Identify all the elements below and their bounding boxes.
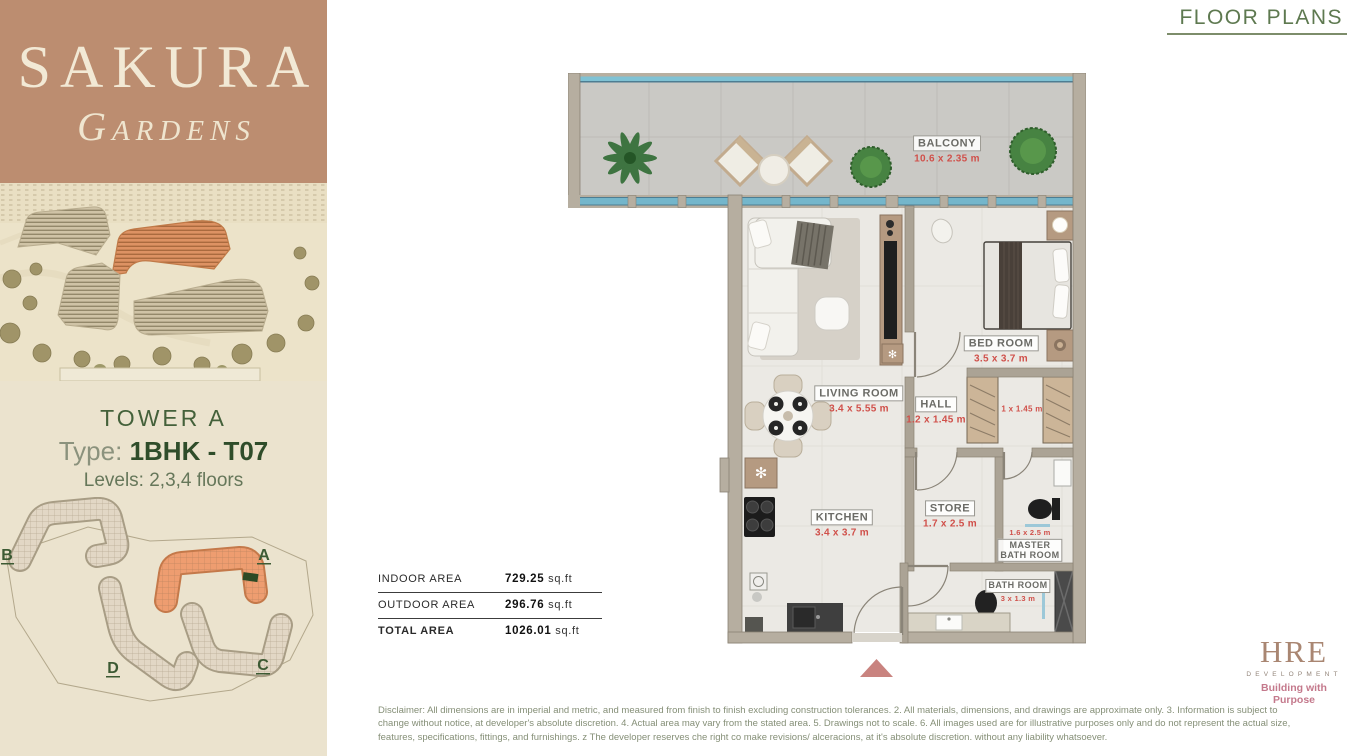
wall-bottom-right [902,632,1073,643]
unit-info: TOWER A Type: 1BHK - T07 Levels: 2,3,4 f… [0,405,327,492]
plant-bush-right [1010,128,1056,174]
floor-plan: ✻ ✻ [568,73,1086,685]
site-plan-graphic: B A D C [0,497,327,711]
developer-tagline: Building with Purpose [1242,682,1346,706]
label-closet-dims: 1 x 1.45 m [1001,405,1042,414]
label-bath-room: BATH ROOM 3 x 1.3 m [985,575,1050,603]
washing-machine [750,573,767,590]
entry-arrow-icon [860,659,893,677]
balcony-table [759,155,789,185]
area-row-indoor: INDOOR AREA 729.25 sq.ft [378,567,602,593]
developer-logo: HRE DEVELOPMENT Building with Purpose [1242,636,1346,706]
wall-right [1073,73,1086,643]
wall-bottom-left [728,632,852,643]
label-bed-room: BED ROOM 3.5 x 3.7 m [964,333,1039,364]
aerial-render-image [0,183,327,381]
fridge: ✻ [745,458,777,488]
render-foreground-building [60,368,260,381]
sidebar: SAKURA GARDENS [0,0,327,756]
page-title-underline [1167,33,1347,35]
bath-vanity [908,613,1010,632]
balcony-floor [570,82,1075,195]
brand-logo: SAKURA GARDENS [0,0,327,183]
brand-name: SAKURA [18,37,319,97]
site-building-a-highlighted [166,558,258,601]
kitchen-bin [752,592,762,602]
kitchen-sink-counter [787,603,843,632]
disclaimer-text: Disclaimer: All dimensions are in imperi… [378,704,1294,744]
brand-subtitle: GARDENS [77,107,256,147]
master-sink [1054,460,1071,486]
coffee-table [815,297,849,330]
area-row-total: TOTAL AREA 1026.01 sq.ft [378,619,602,644]
window-band [568,195,1086,208]
service-shaft [1055,570,1073,632]
label-kitchen: KITCHEN 3.4 x 3.7 m [811,507,873,538]
site-building-b [20,509,117,560]
unit-levels: Levels: 2,3,4 floors [0,470,327,492]
label-store: STORE 1.7 x 2.5 m [923,498,977,529]
site-plan: B A D C [0,497,327,711]
developer-name: HRE [1242,636,1346,667]
tower-name: TOWER A [0,405,327,432]
sideboard: ✻ [882,344,903,363]
kitchen-cabinet [745,617,763,632]
wardrobe-left [967,377,998,443]
site-label-b: B [1,547,13,564]
area-table: INDOOR AREA 729.25 sq.ft OUTDOOR AREA 29… [378,567,602,644]
wall-left-bump [720,458,729,492]
cooktop [744,497,775,537]
wardrobe-right [1043,377,1073,443]
label-master-bath-room: 1.6 x 2.5 m MASTERBATH ROOM [997,527,1062,563]
site-label-a: A [258,547,270,564]
wall-left [728,195,742,643]
tv-console [880,215,902,365]
developer-division: DEVELOPMENT [1242,671,1346,678]
nightstand-bottom [1047,330,1073,361]
label-living-room: LIVING ROOM 3.4 x 5.55 m [814,383,903,414]
bed [984,242,1071,329]
unit-type: Type: 1BHK - T07 [0,436,327,467]
balcony-wall-left [568,73,580,200]
svg-text:✻: ✻ [888,349,897,361]
unit-type-label: Type: [59,436,123,466]
area-row-outdoor: OUTDOOR AREA 296.76 sq.ft [378,593,602,619]
label-balcony: BALCONY 10.6 x 2.35 m [913,133,981,164]
site-label-d: D [107,660,119,677]
unit-type-value: 1BHK - T07 [130,436,269,466]
balcony-glass-rail [570,73,1075,83]
svg-text:✻: ✻ [755,465,768,482]
site-label-c: C [257,657,269,674]
aerial-render-graphic [0,183,327,381]
nightstand-top [1047,211,1073,240]
label-hall: HALL 1.2 x 1.45 m [906,394,966,425]
page-title: FLOOR PLANS [1179,6,1343,30]
plant-bush [851,147,891,187]
master-toilet [1028,498,1060,520]
entrance-threshold [852,633,902,642]
